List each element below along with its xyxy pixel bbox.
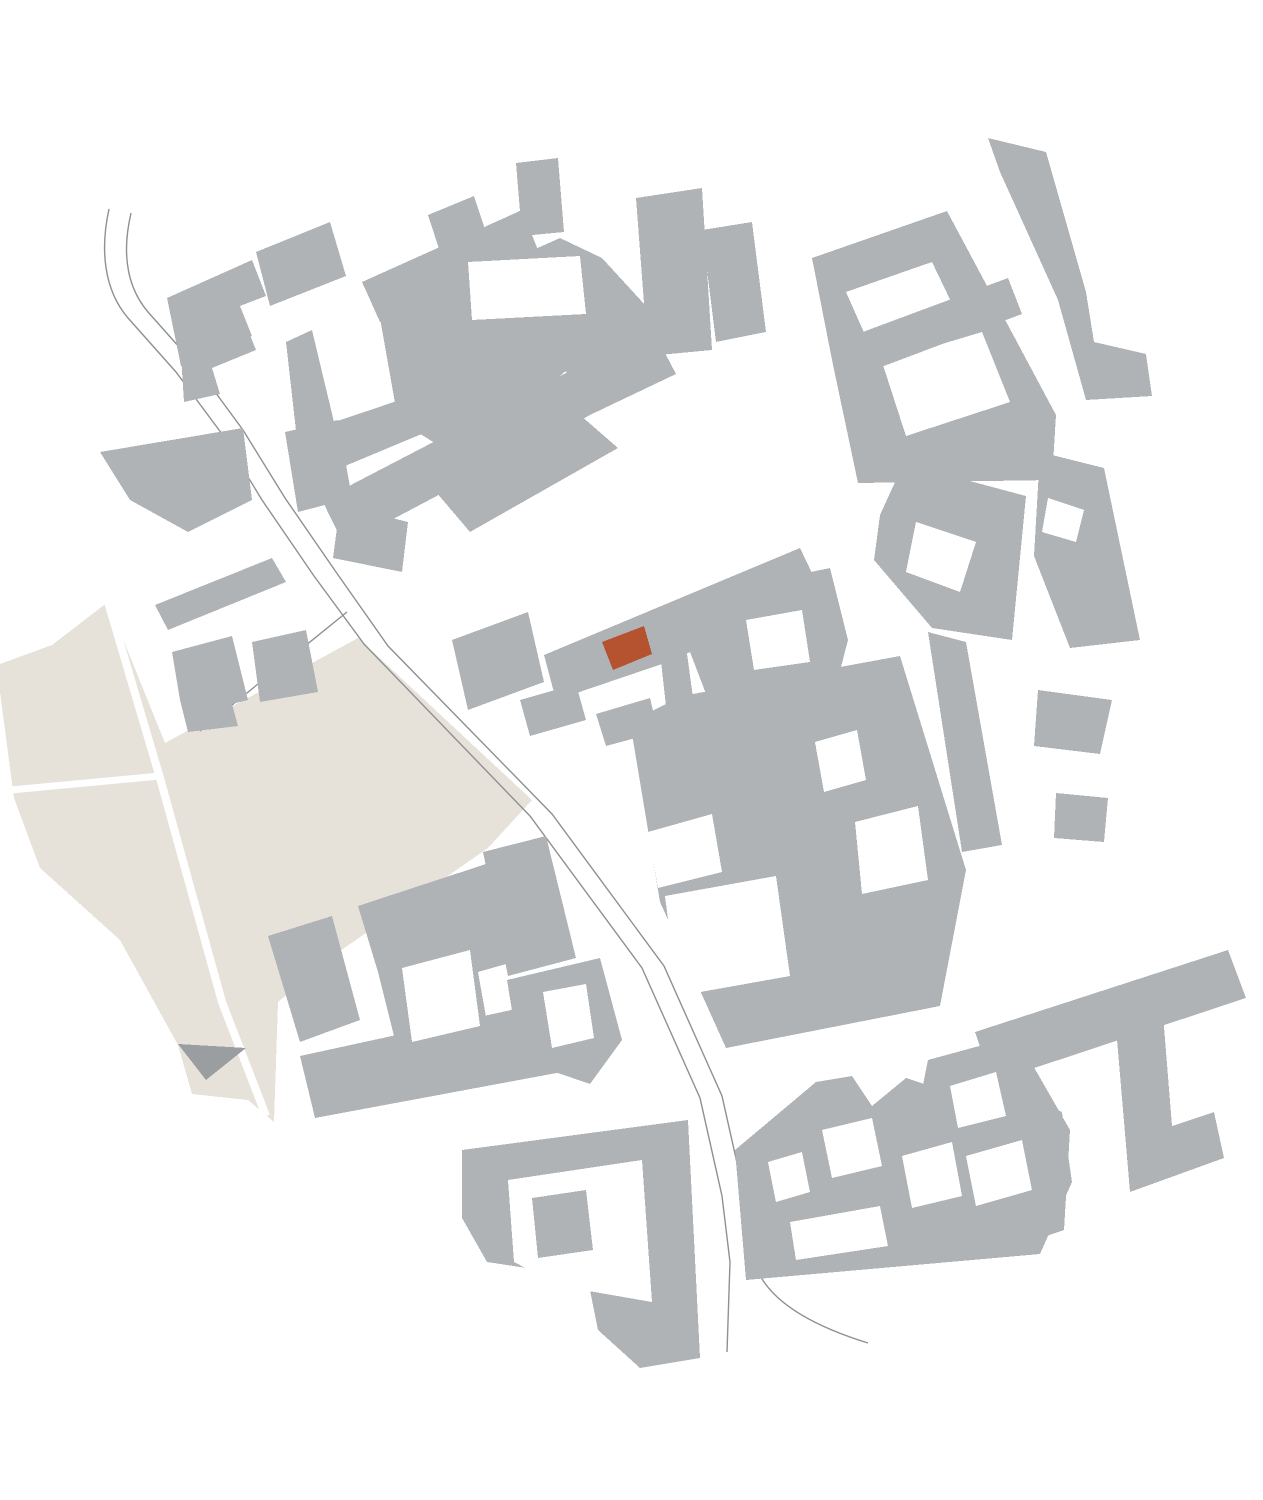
building-footprint <box>702 222 766 342</box>
courtyard <box>543 984 594 1048</box>
figure-ground-map <box>0 0 1263 1500</box>
building-footprint <box>100 428 252 532</box>
building-footprint <box>1054 793 1108 842</box>
building-footprint <box>1034 452 1140 648</box>
courtyard <box>468 256 586 320</box>
building-footprint <box>520 684 586 736</box>
building-footprint <box>252 630 318 702</box>
building-footprint <box>452 612 544 710</box>
building-inner-wing <box>532 1190 593 1258</box>
building-footprint <box>1115 1002 1224 1192</box>
building-footprint <box>256 222 346 306</box>
courtyard <box>665 876 790 996</box>
courtyard <box>746 610 810 670</box>
building-footprint <box>1034 690 1112 754</box>
site-plan-svg <box>0 0 1263 1500</box>
building-footprint <box>155 558 286 630</box>
